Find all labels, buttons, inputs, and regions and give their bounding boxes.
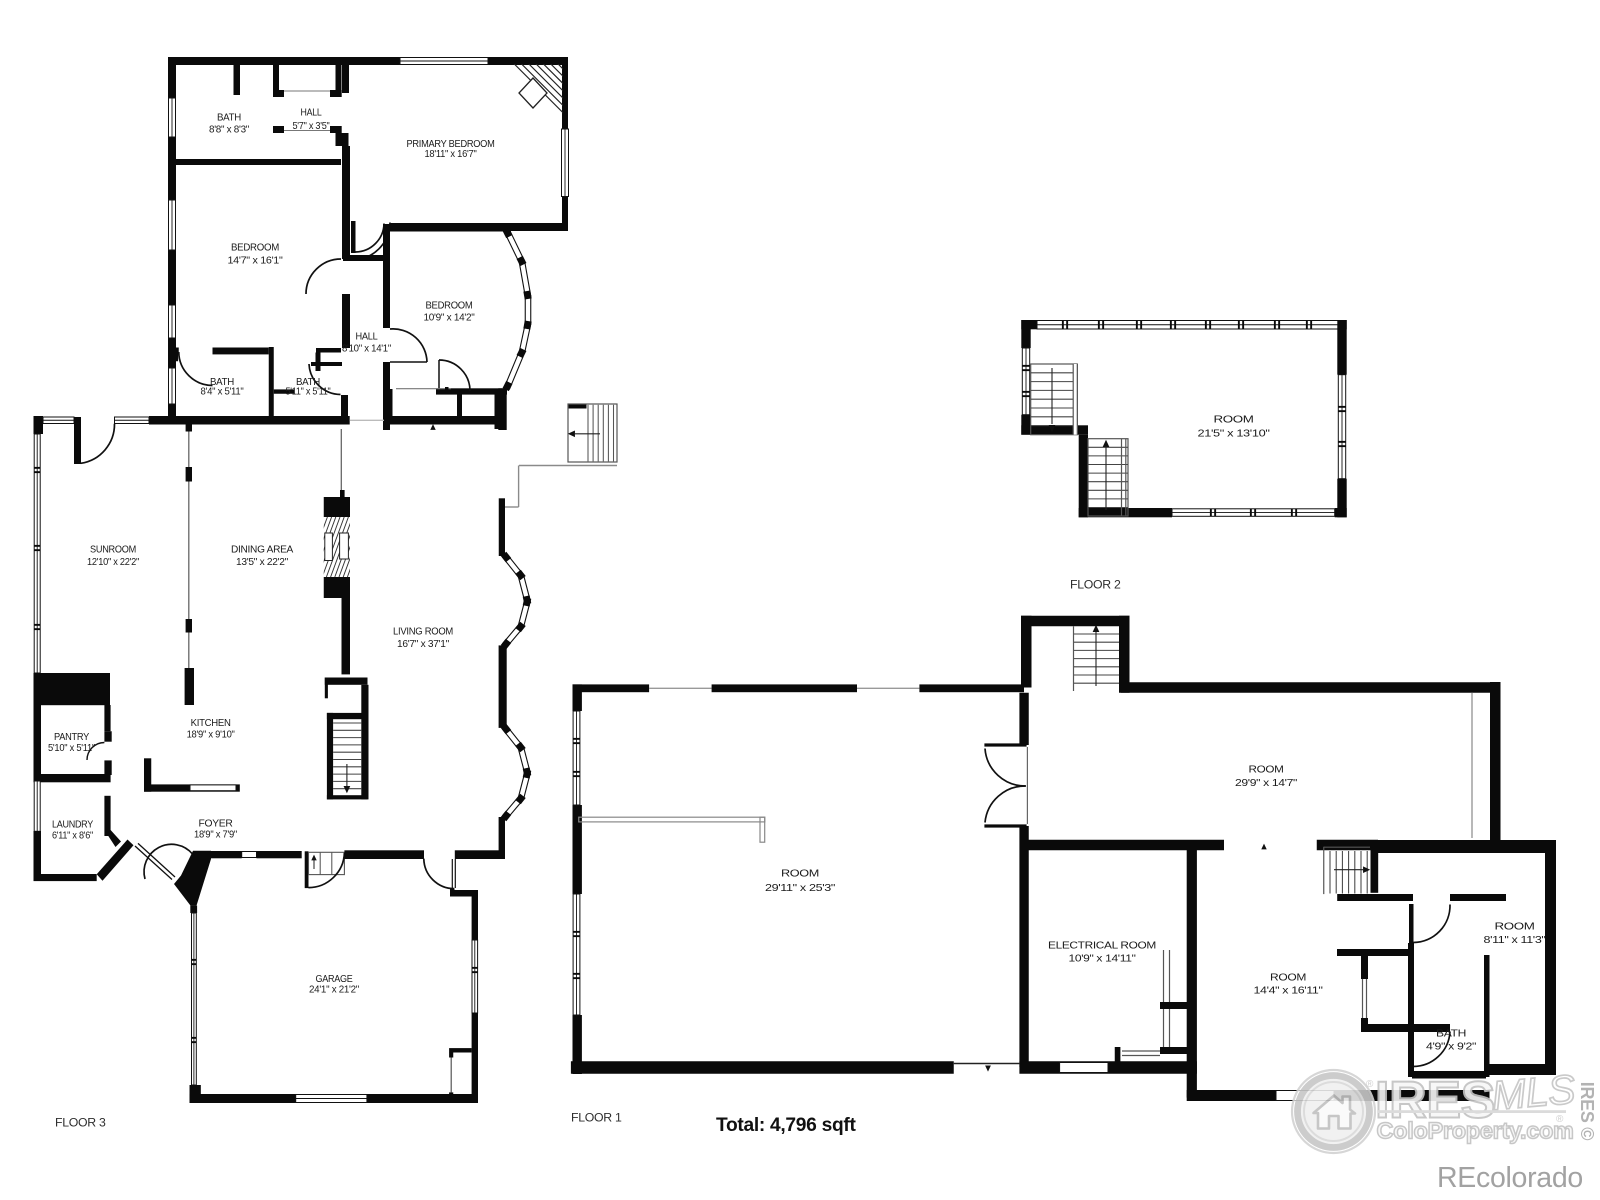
svg-text:8'11" x 11'3": 8'11" x 11'3" <box>1484 935 1547 946</box>
svg-text:ROOM: ROOM <box>1270 973 1306 984</box>
svg-text:16'7" x 37'1": 16'7" x 37'1" <box>397 639 450 650</box>
svg-text:FOYER: FOYER <box>199 819 233 830</box>
svg-text:10'9" x 14'2": 10'9" x 14'2" <box>424 313 476 324</box>
svg-text:10'9" x 14'11": 10'9" x 14'11" <box>1069 954 1137 965</box>
svg-text:5'11" x 5'11": 5'11" x 5'11" <box>286 387 332 398</box>
svg-text:BATH: BATH <box>1436 1029 1466 1040</box>
svg-text:5'7" x 3'5": 5'7" x 3'5" <box>293 121 331 132</box>
svg-text:14'4" x 16'11": 14'4" x 16'11" <box>1254 986 1324 997</box>
svg-text:18'9" x 7'9": 18'9" x 7'9" <box>194 830 238 841</box>
svg-text:ROOM: ROOM <box>1214 415 1254 426</box>
svg-text:GARAGE: GARAGE <box>316 974 353 985</box>
svg-text:BEDROOM: BEDROOM <box>426 301 473 312</box>
svg-text:LIVING ROOM: LIVING ROOM <box>393 627 453 638</box>
svg-text:IRES ©: IRES © <box>1577 1082 1597 1141</box>
svg-text:FLOOR 1: FLOOR 1 <box>571 1111 622 1125</box>
svg-text:8'8" x 8'3": 8'8" x 8'3" <box>209 125 250 136</box>
svg-text:PANTRY: PANTRY <box>54 732 89 743</box>
svg-text:®: ® <box>1366 1079 1374 1090</box>
svg-text:29'9" x 14'7": 29'9" x 14'7" <box>1235 778 1298 789</box>
svg-text:REcolorado: REcolorado <box>1437 1162 1583 1194</box>
svg-text:8'4" x 5'11": 8'4" x 5'11" <box>201 387 245 398</box>
svg-text:24'1" x 21'2": 24'1" x 21'2" <box>309 985 360 996</box>
svg-text:8'10" x 14'1": 8'10" x 14'1" <box>342 344 392 355</box>
svg-text:21'5" x 13'10": 21'5" x 13'10" <box>1198 429 1271 440</box>
svg-text:18'9" x 9'10": 18'9" x 9'10" <box>187 730 236 741</box>
svg-text:BEDROOM: BEDROOM <box>231 243 279 254</box>
svg-text:DINING AREA: DINING AREA <box>231 545 293 556</box>
svg-text:ELECTRICAL ROOM: ELECTRICAL ROOM <box>1048 941 1156 952</box>
svg-text:HALL: HALL <box>301 108 322 119</box>
svg-text:KITCHEN: KITCHEN <box>191 718 231 729</box>
svg-text:FLOOR 2: FLOOR 2 <box>1070 578 1121 592</box>
svg-text:4'9" x 9'2": 4'9" x 9'2" <box>1426 1042 1477 1053</box>
svg-text:®: ® <box>1556 1114 1564 1125</box>
svg-text:SUNROOM: SUNROOM <box>90 545 136 556</box>
svg-text:13'5" x 22'2": 13'5" x 22'2" <box>236 557 289 568</box>
svg-text:14'7" x 16'1": 14'7" x 16'1" <box>228 256 284 267</box>
svg-text:12'10" x 22'2": 12'10" x 22'2" <box>87 557 140 568</box>
svg-text:FLOOR 3: FLOOR 3 <box>55 1116 106 1130</box>
svg-text:ROOM: ROOM <box>1495 922 1535 933</box>
svg-text:18'11" x 16'7": 18'11" x 16'7" <box>425 149 478 160</box>
svg-text:6'11" x 8'6": 6'11" x 8'6" <box>52 831 94 842</box>
svg-text:LAUNDRY: LAUNDRY <box>52 820 93 831</box>
svg-text:HALL: HALL <box>356 332 379 343</box>
svg-text:5'10" x 5'11": 5'10" x 5'11" <box>48 743 96 754</box>
svg-text:29'11" x 25'3": 29'11" x 25'3" <box>765 883 836 894</box>
svg-text:ColoProperty.com: ColoProperty.com <box>1377 1118 1574 1144</box>
svg-text:ROOM: ROOM <box>1249 765 1284 776</box>
svg-text:Total: 4,796 sqft: Total: 4,796 sqft <box>716 1115 856 1136</box>
svg-text:ROOM: ROOM <box>781 869 819 880</box>
svg-text:BATH: BATH <box>217 113 241 124</box>
